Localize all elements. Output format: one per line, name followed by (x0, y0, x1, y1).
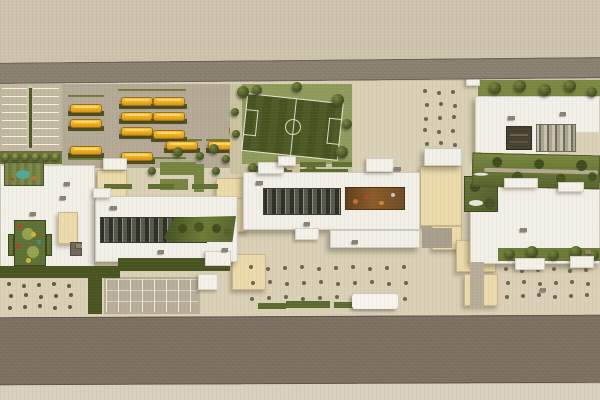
plaza-tree-dots (437, 91, 441, 95)
plaza-tree-dots (423, 89, 427, 93)
plaza-tree-dots (585, 293, 589, 297)
soccer-field (241, 93, 344, 161)
plaza-tree-dots (402, 265, 406, 269)
left-lot-hedge (29, 88, 32, 148)
roof-tab (93, 188, 111, 198)
tree (336, 146, 348, 158)
plaza-tree-dots (387, 282, 391, 286)
playground-courtyard (14, 220, 46, 266)
plaza-tree-dots (537, 293, 541, 297)
plaza-tree-dots (302, 281, 306, 285)
school-bus (153, 112, 185, 121)
sawtooth-skylight (263, 188, 341, 215)
plaza-tree-dots (285, 282, 289, 286)
school-bus (153, 130, 185, 139)
plaza-tree-dots (267, 296, 271, 300)
entry-canopy (352, 294, 398, 309)
plaza-tree-dots (370, 280, 374, 284)
tree (231, 108, 239, 116)
play-dot (31, 232, 36, 237)
school-bus (70, 104, 102, 113)
shrub (2, 153, 10, 161)
stall-hedge-line (68, 158, 104, 160)
plaza-tree-dots (439, 102, 443, 106)
tree (514, 80, 526, 92)
plaza-tree-dots (569, 294, 573, 298)
roof-vent (158, 250, 164, 254)
building-center-ext (330, 230, 420, 248)
roof-vent (540, 288, 546, 292)
tan-roof-block (58, 212, 78, 244)
plaza-tree-dots (335, 295, 339, 299)
path-circle (27, 246, 39, 258)
left-lot-stalls-a (2, 88, 27, 149)
roof-tab (504, 178, 538, 188)
angled-green-courtyard (164, 216, 236, 242)
tree-spot (224, 228, 232, 236)
hedge-tuft (258, 303, 286, 309)
tree (252, 85, 262, 95)
school-bus (121, 97, 153, 106)
site-plan-canvas (0, 0, 600, 400)
tree (237, 86, 249, 98)
bottom-road (0, 315, 600, 386)
plaza-tree-dots (334, 266, 338, 270)
roof-vent (64, 182, 70, 186)
tree (173, 147, 183, 157)
playground-wing (46, 234, 52, 256)
tree (526, 246, 538, 258)
hedge-tuft (148, 184, 174, 189)
plaza-tree-dots (38, 304, 42, 308)
roof-vent (76, 244, 82, 248)
plaza-tree-dots (385, 266, 389, 270)
stair-bump (205, 251, 231, 266)
roof-tab (103, 158, 127, 170)
plaza-tree-dots (570, 280, 574, 284)
school-bus (121, 112, 153, 121)
ribbed-skylight (536, 124, 576, 152)
plaza-tree-dots (423, 128, 427, 132)
tree-spot (212, 224, 221, 233)
amber-courtyard (345, 187, 405, 210)
shrub (32, 153, 40, 161)
building-link-block (424, 148, 462, 166)
courtyard-dot (379, 201, 384, 205)
planter-dot (32, 176, 36, 180)
plaza-tree-dots (453, 104, 457, 108)
plaza-tree-dots (403, 297, 407, 301)
tree (222, 155, 230, 163)
stall-hedge-line (150, 157, 186, 159)
plaza-tree-dots (522, 280, 526, 284)
plaza-tree-dots (249, 265, 253, 269)
roof-vent (560, 112, 566, 116)
sf-circle (284, 118, 302, 136)
plaza-tree-dots (9, 294, 13, 298)
plaza-tree-dots (39, 295, 43, 299)
plaza-tree-dots (586, 282, 590, 286)
roof-vent (256, 181, 263, 185)
play-dot (18, 224, 22, 228)
roof-vent (304, 222, 310, 226)
left-lot-stalls-b (33, 88, 59, 149)
tree (564, 80, 576, 92)
plaza-tree-dots (7, 282, 11, 286)
plaza-tree-dots (438, 116, 442, 120)
plaza-tree-dots (351, 265, 355, 269)
school-bus (121, 127, 153, 136)
roof-tab (558, 182, 584, 192)
plaza-tree-dots (37, 283, 41, 287)
field-kiosk (278, 156, 296, 166)
plaza-tree-dots (54, 294, 58, 298)
tree (342, 119, 352, 129)
plaza-tree-dots (8, 306, 12, 310)
tree (539, 84, 551, 96)
plaza-tree-dots (353, 281, 357, 285)
plaza-tree-dots (336, 282, 340, 286)
plaza-tree-dots (284, 295, 288, 299)
tree-spot (194, 222, 204, 232)
plaza-tree-dots (439, 141, 443, 145)
school-bus (70, 119, 102, 128)
roof-vent (585, 250, 591, 254)
tree-spot (178, 224, 187, 233)
tree (148, 167, 156, 175)
plaza-tree-dots (67, 284, 71, 288)
bottom-parking-stalls (106, 279, 198, 312)
roof-tab (570, 256, 594, 268)
play-dot (37, 240, 41, 244)
tree (332, 94, 344, 106)
tree (209, 144, 219, 154)
bottom-light-strip (0, 384, 600, 400)
tree (232, 130, 240, 138)
courtyard-dot (391, 193, 395, 197)
hedge-band-vertical (88, 276, 102, 314)
tree (549, 250, 559, 260)
plaza-tree-dots (283, 266, 287, 270)
sf-boxr (326, 118, 341, 145)
plaza-tree-dots (300, 265, 304, 269)
pond (16, 170, 30, 179)
plaza-tree-dots (553, 295, 557, 299)
roof-vent (520, 228, 527, 232)
white-curve (474, 173, 488, 176)
dark-courtyard (506, 126, 532, 150)
tree-spot (588, 172, 597, 181)
plaza-tree-dots (368, 267, 372, 271)
plaza-tree-dots (437, 130, 441, 134)
stall-hedge-line (118, 89, 154, 91)
shrub (22, 153, 30, 161)
plaza-tree-dots (521, 294, 525, 298)
hedge-tuft (192, 184, 218, 189)
roof-tab (295, 228, 319, 240)
shrub (12, 153, 20, 161)
plaza-tree-dots (451, 129, 455, 133)
plaza-tree-dots (318, 296, 322, 300)
plaza-tree-dots (53, 306, 57, 310)
tree (505, 249, 515, 259)
plaza-tree-dots (425, 142, 429, 146)
hedge-tuft (332, 162, 352, 167)
roof-tab (515, 258, 545, 270)
stall-hedge-line (68, 95, 104, 97)
plaza-tree-dots (52, 282, 56, 286)
planter-dot (11, 178, 14, 181)
playground-wing (8, 234, 14, 256)
hedge-band (0, 266, 120, 278)
plaza-tree-dots (68, 305, 72, 309)
tree-spot (492, 157, 502, 167)
plaza-tree-dots (451, 90, 455, 94)
tree (212, 167, 220, 175)
roof-vent (60, 196, 66, 200)
hedge-tuft (300, 162, 326, 167)
school-bus (70, 146, 102, 155)
gray-walkway (470, 262, 484, 308)
plaza-tree-dots (23, 305, 27, 309)
roof-vent (508, 116, 515, 120)
roof-tab (198, 274, 218, 290)
courtyard-dot (365, 195, 369, 199)
tree-spot (484, 198, 495, 209)
tree (489, 82, 501, 94)
plaza-tree-dots (425, 103, 429, 107)
plaza-tree-dots (22, 284, 26, 288)
gray-connector (422, 228, 452, 248)
roof-vent (110, 206, 117, 210)
play-dot (16, 244, 20, 248)
roof-vent (394, 167, 401, 171)
plaza-tree-dots (317, 267, 321, 271)
plaza-tree-dots (504, 267, 508, 271)
plaza-tree-dots (552, 267, 556, 271)
shrub (42, 153, 50, 161)
tree (292, 82, 302, 92)
play-dot (26, 258, 31, 263)
hammock-curve (469, 200, 483, 206)
plaza-tree-dots (251, 281, 255, 285)
plaza-tree-dots (554, 281, 558, 285)
tree (587, 87, 597, 97)
plaza-tree-dots (505, 295, 509, 299)
tree-spot (534, 159, 544, 169)
plaza-tree-dots (250, 297, 254, 301)
plaza-tree-dots (538, 282, 542, 286)
plaza-tree-dots (568, 269, 572, 273)
plaza-tree-dots (506, 281, 510, 285)
plaza-tree-dots (268, 280, 272, 284)
plaza-tree-dots (424, 117, 428, 121)
plaza-tree-dots (404, 281, 408, 285)
tan-block (420, 166, 462, 226)
courtyard-dot (353, 199, 358, 204)
plaza-tree-dots (24, 293, 28, 297)
hedge-tuft (286, 301, 330, 308)
plaza-tree-dots (453, 143, 457, 147)
roof-vent (30, 212, 36, 216)
court-line (510, 141, 528, 143)
roof-vent (222, 248, 228, 252)
stall-hedge-line (150, 89, 186, 91)
plaza-tree-dots (266, 267, 270, 271)
plaza-tree-dots (584, 268, 588, 272)
school-bus (153, 97, 185, 106)
court-line (510, 134, 528, 136)
plaza-tree-dots (452, 115, 456, 119)
garden-courtyard (4, 162, 44, 186)
roof-tab (366, 158, 394, 172)
sf-boxl (244, 109, 259, 136)
planting-bed (160, 162, 196, 175)
roof-vent (352, 240, 358, 244)
tree (196, 152, 204, 160)
plaza-tree-dots (69, 293, 73, 297)
shrub (52, 153, 60, 161)
plaza-tree-dots (319, 280, 323, 284)
